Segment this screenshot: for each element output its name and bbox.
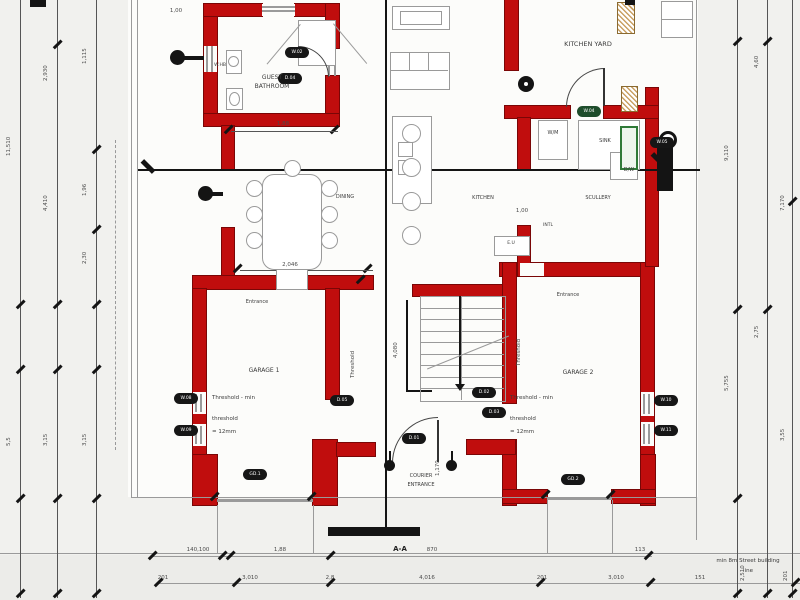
driveway-line: [612, 500, 613, 553]
label-intl: INTL: [543, 223, 553, 228]
dimension-label: 4,016: [419, 575, 435, 581]
note-threshold1-line2: threshold: [212, 416, 238, 422]
dim-chain-line: [158, 583, 800, 584]
dimension-label: 151: [695, 575, 706, 581]
dimension-label: 3,010: [608, 575, 624, 581]
dimension-label: 4,410: [43, 195, 49, 211]
dining-table: [262, 174, 322, 270]
window-sill-line: [200, 394, 202, 412]
island-stool: [402, 158, 421, 177]
door-tag: GD.2: [561, 474, 585, 485]
stair-tread: [420, 331, 504, 332]
site-line-bottom: [0, 553, 800, 554]
dimension-label: 113: [635, 547, 646, 553]
dimension-label: 3,15: [82, 434, 88, 446]
room-label-guest-bathroom-2: BATHROOM: [255, 83, 290, 90]
furniture: [661, 19, 693, 38]
garage2-door-sill: [547, 497, 612, 500]
dimension-label: 201: [158, 575, 169, 581]
wall-segment: [313, 440, 337, 505]
window-tag: W.04: [577, 106, 601, 117]
fixture-label-sink: SINK: [599, 138, 611, 144]
wall-column-marker: [657, 147, 673, 191]
dimension-label: 7,170: [780, 195, 786, 211]
wall-segment: [467, 440, 515, 454]
shower-line: [267, 24, 301, 64]
room-label-garage1: GARAGE 1: [249, 367, 280, 374]
dimension-label: 1,96: [82, 184, 88, 196]
dim-chain-line: [792, 0, 793, 598]
note-street-line1: min 8m Street building: [716, 558, 779, 564]
section-marker-bar: [328, 527, 420, 536]
label-courier-2: ENTRANCE: [407, 482, 434, 488]
furniture: [661, 1, 693, 20]
knob-stem: [451, 451, 453, 461]
site-boundary-right: [696, 0, 697, 540]
dimension-label: 2,30: [82, 252, 88, 264]
dimension-label: Threshold: [516, 339, 522, 366]
dimension-label: 3,15: [43, 434, 49, 446]
fixture-label-dw: D/W: [624, 167, 634, 173]
room-label-garage2: GARAGE 2: [563, 369, 594, 376]
dimension-label: 5,755: [724, 375, 730, 391]
toilet-bowl: [229, 92, 240, 106]
wall-segment: [326, 289, 339, 399]
furniture: [538, 120, 568, 160]
island-stool: [402, 124, 421, 143]
island-stool: [402, 192, 421, 211]
window-sill-line: [211, 46, 213, 72]
note-threshold1-line3: = 12mm: [212, 429, 236, 435]
dimension-label: 4,60: [754, 56, 760, 68]
note-threshold1-line1: Threshold - min: [212, 395, 255, 401]
section-label-aa: A-A: [393, 545, 407, 553]
site-boundary-bottom: [131, 497, 697, 498]
door-leaf: [603, 68, 605, 106]
dining-chair: [246, 206, 263, 223]
label-eu: E.U: [507, 241, 515, 246]
dimension-label: Threshold: [350, 351, 356, 378]
driveway-line: [547, 500, 548, 553]
driveway-line: [313, 505, 314, 553]
door-stop: [384, 460, 395, 471]
label-entrance-garage1: Entrance: [246, 299, 268, 305]
dimension-label: 2,75: [754, 326, 760, 338]
door-knob: [170, 50, 185, 65]
dimension-label: 1,88: [277, 121, 289, 127]
door-tag: W.02: [285, 47, 309, 58]
yard-hatched-fixture: [617, 2, 635, 34]
window-sill-line: [648, 424, 650, 444]
stair-dim-line: [406, 300, 408, 392]
room-label-guest-bathroom-1: GUEST: [262, 74, 282, 81]
bottom-band: [0, 555, 800, 600]
door-tag: D.03: [482, 407, 506, 418]
dimension-label: 2,930: [43, 65, 49, 81]
wall-segment: [505, 106, 570, 118]
label-entrance-garage2: Entrance: [557, 292, 579, 298]
window-sill-line: [262, 6, 295, 8]
corner-marker: [30, 0, 46, 7]
stair-tread: [420, 319, 504, 320]
wall-segment: [518, 118, 530, 170]
floor-plan-drawing: W.02D.04W.05W.04W.08W.09GD.1GD.2W.10W.11…: [0, 0, 800, 600]
door-tag: W.10: [654, 395, 678, 406]
garage1-door-sill: [217, 499, 313, 502]
island-stool: [402, 226, 421, 245]
dining-chair: [321, 206, 338, 223]
wall-segment: [505, 0, 518, 70]
room-label-dining: DINING: [336, 194, 354, 200]
stair-arrow-head: [455, 384, 465, 391]
wall-segment: [413, 285, 505, 296]
fixture-label-whb: W.HB: [214, 63, 226, 68]
furniture: [390, 52, 450, 90]
dimension-label: 870: [427, 547, 438, 553]
door-tag: D.01: [402, 433, 426, 444]
dimension-label: 1,170: [435, 460, 441, 476]
door-tag: D.02: [472, 387, 496, 398]
door-arc: [566, 68, 605, 107]
sofa-line: [428, 52, 429, 70]
site-boundary-left: [131, 0, 132, 497]
dimension-label: 140,100: [187, 547, 210, 553]
window-sill-line: [648, 394, 650, 414]
geyser-window-green: [620, 126, 638, 170]
dining-chair: [321, 232, 338, 249]
boundary-dashed-line: [115, 140, 116, 450]
furniture: [400, 11, 442, 25]
fixture-label-wm: W/M: [548, 130, 559, 136]
door-stop: [446, 460, 457, 471]
door-knob: [198, 186, 213, 201]
room-label-kitchen-yard: KITCHEN YARD: [564, 40, 612, 48]
note-street-line2: line: [743, 568, 753, 574]
driveway-line: [217, 505, 218, 553]
stair-tread: [420, 308, 504, 309]
dimension-label: 2,046: [282, 262, 298, 268]
window-sill-line: [643, 424, 645, 444]
furniture: [276, 268, 308, 290]
section-arrow: [141, 159, 156, 174]
sofa-line: [409, 52, 410, 70]
knob-stem: [212, 192, 223, 196]
room-label-scullery: SCULLERY: [585, 195, 610, 201]
furniture: [494, 236, 530, 256]
yard-hatched-fixture: [621, 86, 638, 112]
wall-opening: [520, 263, 544, 276]
rosette-center: [524, 82, 528, 86]
plan-geometry: W.02D.04W.05W.04W.08W.09GD.1GD.2W.10W.11…: [0, 0, 800, 600]
dim-chain-line: [57, 0, 58, 598]
site-boundary-left: [137, 0, 138, 497]
dim-tick: [233, 263, 243, 273]
dimension-label: 1,88: [274, 547, 286, 553]
door-tag: W.08: [174, 393, 198, 404]
wall-segment: [204, 114, 339, 126]
note-threshold2-line3: = 12mm: [510, 429, 534, 435]
yard-marker: [625, 0, 635, 5]
dimension-label: 201: [537, 575, 548, 581]
knob-stem: [184, 56, 204, 60]
stair-direction-arrow: [459, 296, 461, 384]
section-line-aa-vertical: [385, 0, 387, 527]
dining-chair: [284, 160, 301, 177]
window-sill-line: [200, 426, 202, 444]
stair-tread: [420, 377, 504, 378]
note-threshold2-line2: threshold: [510, 416, 536, 422]
dim-chain-line: [20, 0, 21, 598]
room-label-kitchen: KITCHEN: [472, 195, 494, 201]
door-tag: W.11: [654, 425, 678, 436]
dimension-label: 3,55: [780, 429, 786, 441]
dimension-label: 5,5: [6, 437, 12, 446]
door-tag: D.05: [330, 395, 354, 406]
furniture: [398, 142, 413, 157]
wall-segment: [337, 443, 375, 456]
dining-chair: [246, 180, 263, 197]
dimension-label: 3,010: [242, 575, 258, 581]
dim-chain-line: [737, 0, 738, 598]
window-sill-line: [262, 10, 295, 12]
window-sill-line: [206, 46, 208, 72]
dining-chair: [246, 232, 263, 249]
door-tag: W.09: [174, 425, 198, 436]
dim-chain-line: [767, 0, 768, 598]
dimension-label: 4,080: [393, 342, 399, 358]
dimension-label: 1,00: [516, 208, 528, 214]
dimension-label: 11,510: [6, 137, 12, 156]
window-sill-line: [643, 394, 645, 414]
dimension-label: 1,115: [82, 48, 88, 64]
dim-tick: [363, 263, 373, 273]
note-threshold2-line1: Threshold - min: [510, 395, 553, 401]
label-courier-1: COURIER: [410, 473, 433, 479]
dimension-label: 1,00: [170, 8, 182, 14]
wall-segment: [204, 4, 262, 16]
door-tag: GD.1: [243, 469, 267, 480]
dim-line: [231, 131, 338, 132]
door-leaf: [437, 420, 439, 462]
sofa-line: [390, 70, 448, 71]
dimension-label: 201: [783, 571, 789, 582]
knob-stem: [389, 451, 391, 461]
dimension-label: 9,110: [724, 145, 730, 161]
dim-chain-line: [96, 0, 97, 598]
dimension-label: 2,8: [326, 575, 335, 581]
door-tag: W.05: [650, 137, 674, 148]
basin-bowl: [228, 56, 239, 67]
